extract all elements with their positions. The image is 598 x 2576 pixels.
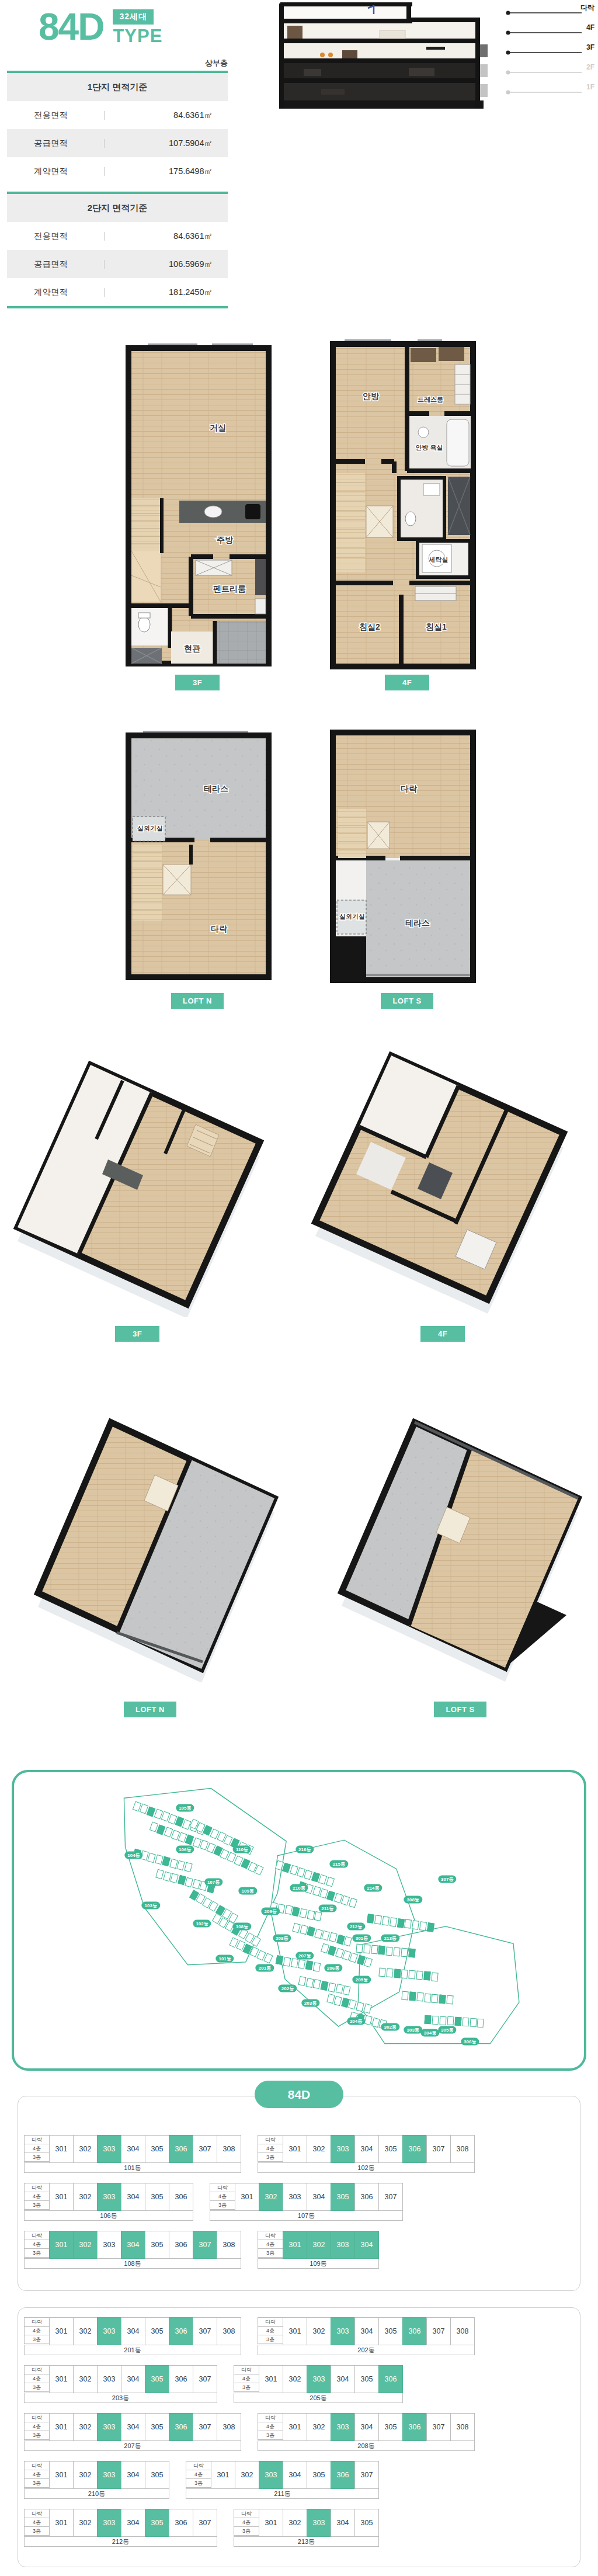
unit-cell: 307 <box>378 2183 403 2211</box>
unit-cell: 307 <box>426 2413 451 2441</box>
type-code: 84D <box>39 5 103 49</box>
iso-view-4f <box>304 1043 587 1314</box>
unit-cell: 306 <box>402 2413 427 2441</box>
unit-cell: 303 <box>307 2365 331 2393</box>
site-plot <box>356 1944 363 1953</box>
floorplan-4f: 안방 드레스룸 안방 욕실 세탁실 침실2 침실1 <box>330 338 476 672</box>
unit-cell: 307 <box>426 2317 451 2345</box>
floor-row-label: 3층 <box>24 2200 50 2210</box>
room-label-terrace: 테라스 <box>204 784 228 793</box>
building-name: 107동 <box>210 2210 403 2221</box>
floor-row-label: 3층 <box>24 2335 50 2344</box>
unit-cell: 303 <box>97 2231 121 2259</box>
tab-loft-n[interactable]: LOFT N <box>171 993 224 1009</box>
unit-cell: 306 <box>402 2135 427 2163</box>
unit-cell: 304 <box>121 2231 145 2259</box>
floor-row-label: 4층 <box>186 2470 211 2479</box>
unit-cell: 304 <box>354 2317 379 2345</box>
site-plot <box>363 1945 370 1954</box>
unit-cell: 303 <box>331 2317 355 2345</box>
unit-cell: 301 <box>235 2183 259 2211</box>
room-label-attic: 다락 <box>401 784 418 793</box>
site-plot <box>424 1971 431 1981</box>
building-name: 101동 <box>24 2162 241 2173</box>
stack-table-210동: 다락4층3층301302303304305210동 <box>24 2461 169 2499</box>
unit-cell: 306 <box>169 2413 193 2441</box>
unit-cell: 302 <box>235 2461 259 2489</box>
unit-cell: 306 <box>169 2365 193 2393</box>
unit-cell: 308 <box>217 2231 241 2259</box>
unit-cell: 305 <box>145 2135 169 2163</box>
type-title-block: 84D 32세대 TYPE <box>39 5 162 49</box>
stack-row: 다락4층3층301302303304305306307212동다락4층3층301… <box>24 2509 580 2547</box>
unit-cell: 304 <box>283 2461 307 2489</box>
floor-row-label: 3층 <box>186 2478 211 2488</box>
site-building-label: 216동 <box>295 1845 314 1853</box>
row-label: 전용면적 <box>7 110 104 121</box>
site-building-label: 210동 <box>290 1884 308 1891</box>
site-plot <box>439 2016 446 2025</box>
unit-cell: 308 <box>450 2135 475 2163</box>
unit-cell: 303 <box>307 2509 331 2537</box>
marker-label-3f: 3F <box>586 43 594 51</box>
site-building-label: 301동 <box>353 1934 371 1942</box>
site-building-label: 213동 <box>381 1934 399 1942</box>
site-building-label: 104동 <box>124 1851 142 1859</box>
floor-row-label: 4층 <box>234 2518 259 2527</box>
site-plot <box>416 1992 423 2002</box>
unit-cell: 307 <box>426 2135 451 2163</box>
room-label-dressroom: 드레스룸 <box>418 396 443 403</box>
tab-iso-3f[interactable]: 3F <box>115 1326 159 1342</box>
floor-row-label: 다락 <box>258 2317 283 2327</box>
unit-cell: 304 <box>121 2365 145 2393</box>
stack-table-201동: 다락4층3층301302303304305306307308201동 <box>24 2317 241 2355</box>
unit-cell: 303 <box>97 2317 121 2345</box>
room-label-terrace: 테라스 <box>405 918 430 928</box>
row-label: 전용면적 <box>7 231 104 242</box>
floor-row-label: 4층 <box>24 2144 50 2153</box>
building-name: 205동 <box>234 2393 403 2403</box>
site-building-label: 110동 <box>233 1845 251 1853</box>
unit-cell: 304 <box>354 2135 379 2163</box>
unit-cell: 303 <box>283 2183 307 2211</box>
building-name: 213동 <box>234 2536 379 2547</box>
site-plot <box>447 1995 454 2005</box>
unit-cell: 307 <box>193 2231 217 2259</box>
unit-cell: 301 <box>283 2231 307 2259</box>
unit-cell: 307 <box>354 2461 379 2489</box>
floor-row-label: 다락 <box>258 2413 283 2422</box>
site-building-label: 211동 <box>318 1905 336 1912</box>
floor-row-label: 4층 <box>258 2422 283 2431</box>
unit-cell: 303 <box>97 2183 121 2211</box>
unit-cell: 307 <box>193 2365 217 2393</box>
floor-row-label: 3층 <box>24 2383 50 2392</box>
unit-cell: 301 <box>49 2413 74 2441</box>
unit-cell: 304 <box>354 2413 379 2441</box>
page: 84D 32세대 TYPE 상부층 1단지 면적기준 전용면적 84.6361㎡… <box>0 0 598 2576</box>
floor-row-label: 3층 <box>24 2526 50 2536</box>
floorplan-3f: 거실 주방 펜트리룸 현관 <box>126 342 272 669</box>
section-pill-84d: 84D <box>255 2081 343 2108</box>
floor-position-label: 상부층 <box>7 58 228 68</box>
site-building-label: 207동 <box>295 1952 314 1960</box>
site-building-label: 308동 <box>404 1896 422 1904</box>
unit-cell: 303 <box>97 2413 121 2441</box>
unit-cell: 305 <box>378 2135 403 2163</box>
site-plot <box>470 2018 477 2028</box>
table-row: 공급면적 107.5904㎡ <box>7 129 228 157</box>
site-building-label: 214동 <box>364 1884 382 1891</box>
table-row: 계약면적 175.6498㎡ <box>7 157 228 185</box>
unit-cell: 302 <box>73 2509 98 2537</box>
unit-cell: 304 <box>121 2135 145 2163</box>
floor-row-label: 4층 <box>24 2240 50 2249</box>
unit-cell: 301 <box>49 2183 74 2211</box>
site-building-label: 209동 <box>262 1908 280 1915</box>
row-label: 공급면적 <box>7 138 104 149</box>
stack-table-107동: 다락4층3층301302303304305306307107동 <box>210 2183 403 2221</box>
unit-cell: 303 <box>97 2461 121 2489</box>
area-table-title: 2단지 면적기준 <box>7 194 228 222</box>
site-building-label: 105동 <box>176 1804 194 1811</box>
site-building-label: 304동 <box>421 2029 439 2037</box>
stack-table-101동: 다락4층3층301302303304305306307308101동 <box>24 2135 241 2173</box>
site-plot <box>409 1970 416 1980</box>
site-plot <box>477 2019 484 2028</box>
marker-label-loft: 다락 <box>580 4 594 12</box>
unit-cell: 306 <box>169 2317 193 2345</box>
site-plot <box>397 1918 405 1928</box>
floor-row-label: 3층 <box>24 2431 50 2440</box>
site-plot <box>432 1994 439 2003</box>
room-label-pantry: 펜트리룸 <box>213 584 246 593</box>
floor-row-label: 4층 <box>258 2144 283 2153</box>
site-plot <box>378 1946 385 1955</box>
unit-cell: 305 <box>378 2413 403 2441</box>
site-building-label: 201동 <box>256 1964 274 1971</box>
household-count-badge: 32세대 <box>113 9 154 25</box>
site-building-label: 103동 <box>142 1902 160 1910</box>
row-value: 175.6498㎡ <box>105 166 228 177</box>
site-plot <box>390 1917 397 1926</box>
unit-cell: 301 <box>211 2461 235 2489</box>
unit-cell: 301 <box>283 2317 307 2345</box>
unit-cell: 301 <box>259 2509 283 2537</box>
unit-cell: 308 <box>217 2413 241 2441</box>
floorplan-loft-n: 테라스 실외기실 다락 <box>126 730 272 983</box>
unit-cell: 303 <box>97 2365 121 2393</box>
unit-cell: 302 <box>73 2413 98 2441</box>
stack-table-207동: 다락4층3층301302303304305306307308207동 <box>24 2413 241 2451</box>
floor-row-label: 3층 <box>234 2383 259 2392</box>
unit-cell: 303 <box>97 2509 121 2537</box>
floor-row-label: 4층 <box>24 2470 50 2479</box>
unit-cell: 307 <box>193 2509 217 2537</box>
site-plot <box>386 1968 393 1977</box>
unit-cell: 308 <box>450 2317 475 2345</box>
stack-row: 다락4층3층301302303304305306307308108동다락4층3층… <box>24 2231 580 2269</box>
building-name: 210동 <box>24 2488 169 2499</box>
tab-iso-loft-n[interactable]: LOFT N <box>124 1702 176 1717</box>
marker-label-2f: 2F <box>586 63 594 71</box>
site-building-label: 203동 <box>301 1999 319 2007</box>
unit-cell: 302 <box>283 2509 307 2537</box>
unit-cell: 301 <box>49 2461 74 2489</box>
site-plot <box>424 1993 431 2002</box>
building-name: 211동 <box>186 2488 379 2499</box>
stack-row: 다락4층3층301302303304305306307308201동다락4층3층… <box>24 2317 580 2355</box>
tab-iso-loft-s[interactable]: LOFT S <box>434 1702 486 1717</box>
stack-table-213동: 다락4층3층301302303304305213동 <box>234 2509 379 2547</box>
unit-cell: 302 <box>307 2317 331 2345</box>
site-building-label: 206동 <box>324 1964 342 1971</box>
floor-row-label: 4층 <box>24 2518 50 2527</box>
floor-row-label: 4층 <box>210 2192 235 2201</box>
unit-cell: 307 <box>193 2317 217 2345</box>
floor-row-label: 다락 <box>24 2461 50 2470</box>
site-plot <box>401 1991 408 2001</box>
unit-cell: 303 <box>331 2135 355 2163</box>
site-map: 105동104동103동106동107동102동110동109동108동101동… <box>12 1770 586 2071</box>
unit-cell: 305 <box>145 2509 169 2537</box>
unit-cell: 305 <box>354 2509 379 2537</box>
site-plot <box>378 1967 385 1977</box>
site-plot <box>416 1971 423 1980</box>
building-name: 212동 <box>24 2536 217 2547</box>
floor-row-label: 3층 <box>258 2335 283 2344</box>
table-row: 전용면적 84.6361㎡ <box>7 101 228 129</box>
stack-row: 다락4층3층301302303304305210동다락4층3층301302303… <box>24 2461 580 2499</box>
unit-cell: 301 <box>259 2365 283 2393</box>
floor-row-label: 다락 <box>258 2231 283 2240</box>
row-label: 계약면적 <box>7 166 104 177</box>
stack-table-212동: 다락4층3층301302303304305306307212동 <box>24 2509 217 2547</box>
site-plot <box>454 2017 461 2026</box>
site-plot <box>409 1992 416 2001</box>
row-label: 계약면적 <box>7 287 104 298</box>
site-plot <box>290 1958 298 1968</box>
unit-cell: 306 <box>402 2317 427 2345</box>
marker-label-4f: 4F <box>586 23 594 32</box>
site-building-label: 101동 <box>215 1955 234 1963</box>
site-plot <box>424 2015 431 2024</box>
room-label-living: 거실 <box>210 423 226 432</box>
unit-cell: 305 <box>145 2413 169 2441</box>
unit-cell: 302 <box>73 2183 98 2211</box>
unit-cell: 305 <box>145 2461 169 2489</box>
site-plot <box>447 2016 454 2026</box>
floor-row-label: 4층 <box>234 2374 259 2383</box>
floor-row-label: 3층 <box>258 2153 283 2162</box>
unit-cell: 305 <box>378 2317 403 2345</box>
unit-cell: 302 <box>73 2231 98 2259</box>
unit-table-group-1: 다락4층3층301302303304305306307308101동다락4층3층… <box>18 2096 580 2291</box>
site-plot <box>432 2015 439 2025</box>
floor-row-label: 다락 <box>24 2183 50 2192</box>
stack-table-102동: 다락4층3층301302303304305306307308102동 <box>258 2135 475 2173</box>
unit-cell: 302 <box>73 2365 98 2393</box>
floor-row-label: 다락 <box>234 2509 259 2518</box>
floor-row-label: 다락 <box>210 2183 235 2192</box>
floor-row-label: 다락 <box>24 2231 50 2240</box>
site-plot <box>439 1994 446 2004</box>
floor-row-label: 다락 <box>234 2365 259 2374</box>
floor-row-label: 다락 <box>24 2365 50 2374</box>
site-plot <box>401 1947 408 1957</box>
site-map-outlines <box>14 1772 584 2068</box>
unit-cell: 301 <box>283 2413 307 2441</box>
building-name: 201동 <box>24 2345 241 2355</box>
floor-markers: 다락 4F 3F 2F 1F <box>506 4 595 95</box>
stack-row: 다락4층3층301302303304305306307308207동다락4층3층… <box>24 2413 580 2451</box>
site-building-label: 102동 <box>193 1919 211 1927</box>
row-value: 107.5904㎡ <box>105 138 228 149</box>
floor-row-label: 다락 <box>186 2461 211 2470</box>
site-plot <box>401 1970 408 1979</box>
unit-cell: 304 <box>121 2509 145 2537</box>
tab-4f[interactable]: 4F <box>385 675 429 690</box>
unit-cell: 302 <box>73 2317 98 2345</box>
building-name: 102동 <box>258 2162 475 2173</box>
teal-bar <box>7 306 228 308</box>
room-label-ac: 실외기실 <box>339 913 365 920</box>
table-row: 공급면적 106.5969㎡ <box>7 250 228 278</box>
room-label-bed2: 침실2 <box>359 622 380 631</box>
site-plot <box>283 1957 291 1967</box>
unit-cell: 304 <box>307 2183 331 2211</box>
site-plot <box>394 1947 401 1956</box>
stack-table-205동: 다락4층3층301302303304305306205동 <box>234 2365 403 2403</box>
unit-cell: 302 <box>307 2413 331 2441</box>
floor-row-label: 다락 <box>24 2509 50 2518</box>
unit-cell: 301 <box>49 2231 74 2259</box>
stack-table-203동: 다락4층3층301302303304305306307203동 <box>24 2365 217 2403</box>
row-value: 106.5969㎡ <box>105 259 228 270</box>
unit-cell: 302 <box>307 2135 331 2163</box>
unit-cell: 304 <box>354 2231 379 2259</box>
stack-table-208동: 다락4층3층301302303304305306307308208동 <box>258 2413 475 2451</box>
room-label-entrance: 현관 <box>184 644 201 653</box>
unit-cell: 302 <box>73 2135 98 2163</box>
unit-cell: 304 <box>331 2509 355 2537</box>
floor-row-label: 4층 <box>24 2192 50 2201</box>
unit-cell: 305 <box>354 2365 379 2393</box>
unit-cell: 305 <box>307 2461 331 2489</box>
tab-iso-4f[interactable]: 4F <box>420 1326 465 1342</box>
floor-row-label: 다락 <box>24 2317 50 2327</box>
site-building-label: 107동 <box>204 1878 222 1886</box>
site-building-label: 215동 <box>330 1860 348 1868</box>
floor-row-label: 3층 <box>258 2431 283 2440</box>
unit-cell: 302 <box>283 2365 307 2393</box>
row-value: 84.6361㎡ <box>105 231 228 242</box>
unit-cell: 303 <box>97 2135 121 2163</box>
unit-cell: 308 <box>217 2135 241 2163</box>
floor-row-label: 3층 <box>210 2200 235 2210</box>
unit-cell: 306 <box>169 2183 193 2211</box>
unit-cell: 305 <box>145 2231 169 2259</box>
unit-cell: 301 <box>49 2135 74 2163</box>
unit-cell: 306 <box>169 2135 193 2163</box>
floor-row-label: 3층 <box>258 2248 283 2258</box>
unit-cell: 301 <box>49 2365 74 2393</box>
site-building-label: 108동 <box>233 1922 251 1930</box>
tab-3f[interactable]: 3F <box>175 675 220 690</box>
floorplan-loft-s: 다락 실외기실 테라스 <box>330 727 476 985</box>
site-building-label: 303동 <box>404 2026 422 2034</box>
stack-table-211동: 다락4층3층301302303304305306307211동 <box>186 2461 379 2499</box>
building-name: 202동 <box>258 2345 475 2355</box>
room-label-master-bath: 안방 욕실 <box>415 444 443 451</box>
unit-cell: 302 <box>259 2183 283 2211</box>
building-section-illustration: 다락 4F 3F 2F 1F <box>234 0 598 117</box>
room-label-bed1: 침실1 <box>426 622 447 631</box>
floor-row-label: 4층 <box>24 2374 50 2383</box>
iso-view-3f <box>9 1049 274 1317</box>
floor-row-label: 3층 <box>24 2153 50 2162</box>
unit-cell: 304 <box>121 2461 145 2489</box>
floor-row-label: 3층 <box>24 2478 50 2488</box>
site-building-label: 306동 <box>461 2038 479 2046</box>
building-name: 109동 <box>258 2258 379 2269</box>
floor-row-label: 4층 <box>258 2326 283 2335</box>
floor-row-label: 다락 <box>24 2135 50 2144</box>
site-plot <box>394 1969 401 1978</box>
unit-cell: 306 <box>169 2231 193 2259</box>
floor-row-label: 3층 <box>24 2248 50 2258</box>
stack-table-109동: 다락4층3층301302303304109동 <box>258 2231 379 2269</box>
unit-cell: 301 <box>49 2509 74 2537</box>
type-word: TYPE <box>113 26 162 47</box>
site-building-label: 204동 <box>347 2017 365 2025</box>
floor-row-label: 4층 <box>24 2422 50 2431</box>
marker-label-1f: 1F <box>586 83 594 91</box>
area-table-complex2: 2단지 면적기준 전용면적 84.6361㎡ 공급면적 106.5969㎡ 계약… <box>7 192 228 308</box>
unit-cell: 306 <box>169 2509 193 2537</box>
row-value: 84.6361㎡ <box>105 110 228 121</box>
site-building-label: 208동 <box>273 1934 291 1942</box>
iso-view-loft-s <box>321 1408 596 1682</box>
unit-cell: 304 <box>121 2317 145 2345</box>
unit-cell: 306 <box>331 2461 355 2489</box>
unit-cell: 304 <box>121 2413 145 2441</box>
unit-cell: 305 <box>331 2183 355 2211</box>
unit-cell: 305 <box>145 2317 169 2345</box>
unit-cell: 303 <box>331 2413 355 2441</box>
site-building-label: 109동 <box>238 1887 256 1894</box>
stack-row: 다락4층3층301302303304305306307308101동다락4층3층… <box>24 2135 580 2173</box>
row-label: 공급면적 <box>7 259 104 270</box>
area-table-title: 1단지 면적기준 <box>7 73 228 101</box>
unit-cell: 301 <box>49 2317 74 2345</box>
site-plot <box>432 1972 439 1981</box>
site-building-label: 305동 <box>438 2026 456 2034</box>
tab-loft-s[interactable]: LOFT S <box>381 993 433 1009</box>
site-plot <box>382 1916 390 1925</box>
building-name: 208동 <box>258 2440 475 2451</box>
site-plot <box>462 2018 469 2027</box>
site-building-label: 205동 <box>353 1976 371 1983</box>
site-plot <box>374 1915 382 1924</box>
room-label-laundry: 세탁실 <box>429 556 448 563</box>
stack-row: 다락4층3층301302303304305306106동다락4층3층301302… <box>24 2183 580 2221</box>
iso-view-loft-n <box>15 1411 289 1682</box>
unit-cell: 308 <box>217 2317 241 2345</box>
row-value: 181.2450㎡ <box>105 287 228 298</box>
unit-cell: 304 <box>331 2365 355 2393</box>
